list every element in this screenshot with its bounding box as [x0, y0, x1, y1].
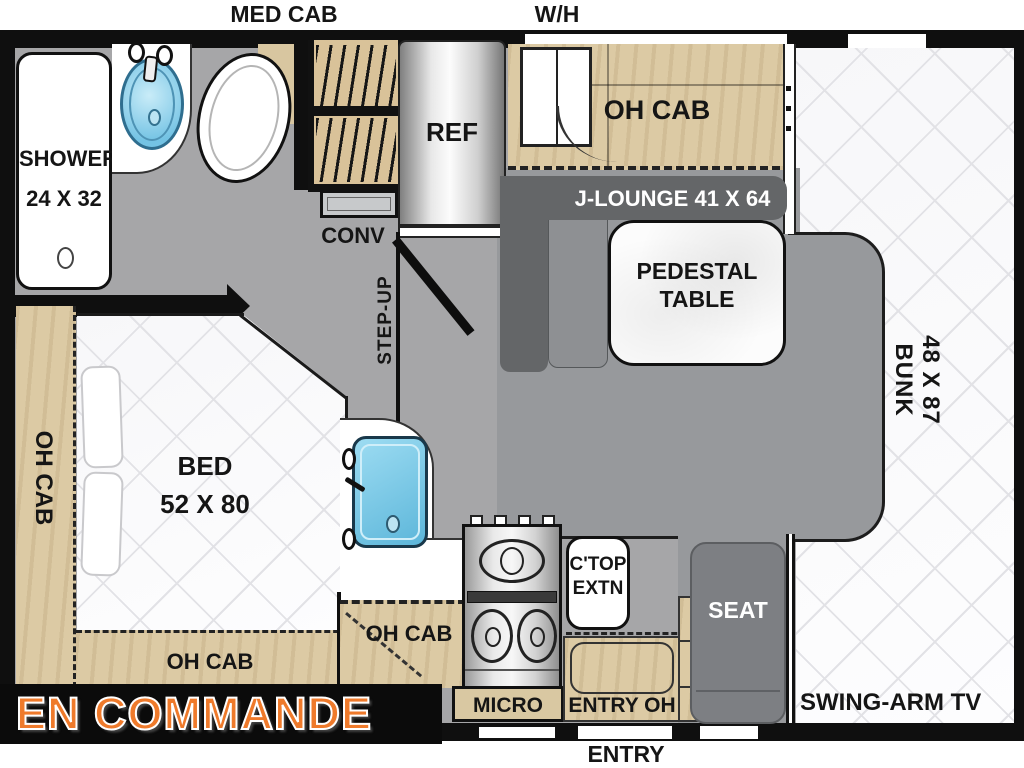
oven-handle: [467, 591, 557, 603]
pillow-2: [80, 471, 124, 576]
faucet-handle-2: [156, 45, 173, 66]
convection-inner: [327, 197, 391, 211]
status-banner-text: EN COMMANDE: [16, 688, 372, 740]
stove-burner-left: [471, 609, 513, 663]
seat-label: SEAT: [690, 598, 786, 623]
swing-arm-tv-label: SWING-ARM TV: [800, 690, 1005, 716]
seat-divider-wall: [786, 534, 795, 725]
kitchen-faucet-2: [342, 528, 356, 550]
kitchen-sink-drain: [386, 515, 400, 533]
step-wall: [396, 232, 400, 422]
bunk-name: BUNK: [890, 320, 917, 440]
galley-counter-band: [414, 538, 466, 600]
slide-tick-1: [786, 86, 791, 91]
slide-tick-3: [786, 126, 791, 131]
cab-floor-curve: [788, 232, 885, 542]
ctop-label-1: C'TOP: [569, 555, 627, 576]
convection-unit: [320, 190, 398, 218]
ref-shelf: [398, 226, 506, 238]
cab-seat: [690, 542, 786, 724]
entry-door-gap: [578, 726, 672, 739]
bed-edge-top: [77, 313, 244, 316]
left-wall: [0, 30, 15, 686]
pedestal-table: PEDESTAL TABLE: [608, 220, 786, 366]
refrigerator-label: REF: [398, 118, 506, 147]
overhead-cab-left-label: OH CAB: [32, 423, 56, 533]
stove-top-burner-center: [500, 547, 524, 575]
stove-top-burner: [479, 539, 545, 583]
water-heater-label: W/H: [517, 2, 597, 27]
pillow-1: [80, 365, 124, 468]
entry-cab-outline: [570, 642, 674, 694]
overhead-cab-rear-label: OH CAB: [120, 650, 300, 674]
bottom-window: [478, 726, 556, 739]
kitchen-faucet-1: [342, 448, 356, 470]
convection-label: CONV: [312, 224, 394, 248]
top-window-2: [848, 34, 926, 48]
countertop-extension: C'TOP EXTN: [566, 536, 630, 630]
ctop-label-2: EXTN: [569, 579, 627, 600]
slide-tick-2: [786, 106, 791, 111]
steps-hatch-upper: [316, 45, 396, 107]
entry-label: ENTRY: [566, 742, 686, 767]
rv-floorplan: 48 X 87 BUNK SWING-ARM TV SHOWER 24 X 32: [0, 0, 1024, 768]
seat-base-line: [696, 690, 780, 692]
pedestal-table-label-2: TABLE: [611, 287, 783, 312]
bunk-size: 48 X 87: [917, 320, 944, 440]
med-cab-label: MED CAB: [214, 2, 354, 27]
bed-size: 52 X 80: [140, 490, 270, 519]
status-banner: EN COMMANDE: [0, 684, 442, 744]
shower-label: SHOWER: [19, 147, 109, 171]
overhead-cab-top-label: OH CAB: [562, 96, 752, 126]
microwave-label: MICRO: [452, 694, 564, 717]
right-wall: [1014, 30, 1024, 741]
sink-drain: [148, 109, 161, 126]
bunk-label: 48 X 87 BUNK: [888, 320, 944, 440]
bed-label: BED: [140, 452, 270, 481]
step-up-label: STEP-UP: [376, 270, 396, 370]
stove: [462, 524, 562, 692]
burner-right-center: [530, 627, 545, 647]
shower-size: 24 X 32: [19, 187, 109, 211]
burner-left-center: [485, 627, 501, 647]
pedestal-table-label-1: PEDESTAL: [611, 259, 783, 284]
faucet-handle-1: [128, 42, 145, 63]
stove-bottom-line: [465, 669, 559, 671]
wh-door-line: [556, 50, 558, 144]
shower-drain: [57, 247, 74, 269]
ctop-dash-line: [566, 632, 686, 635]
faucet-spout: [143, 55, 159, 82]
j-lounge-label: J-LOUNGE 41 X 64: [565, 187, 780, 211]
steps-bar: [314, 106, 398, 116]
kitchen-sink: [352, 436, 428, 548]
wardrobe-steps: [308, 40, 398, 192]
steps-hatch-lower: [316, 118, 396, 182]
shower: SHOWER 24 X 32: [16, 52, 112, 290]
overhead-cab-galley-label: OH CAB: [352, 622, 466, 646]
bottom-window-2: [700, 726, 758, 739]
entry-overhead-label: ENTRY OH: [563, 694, 681, 717]
stove-burner-right: [517, 609, 557, 663]
